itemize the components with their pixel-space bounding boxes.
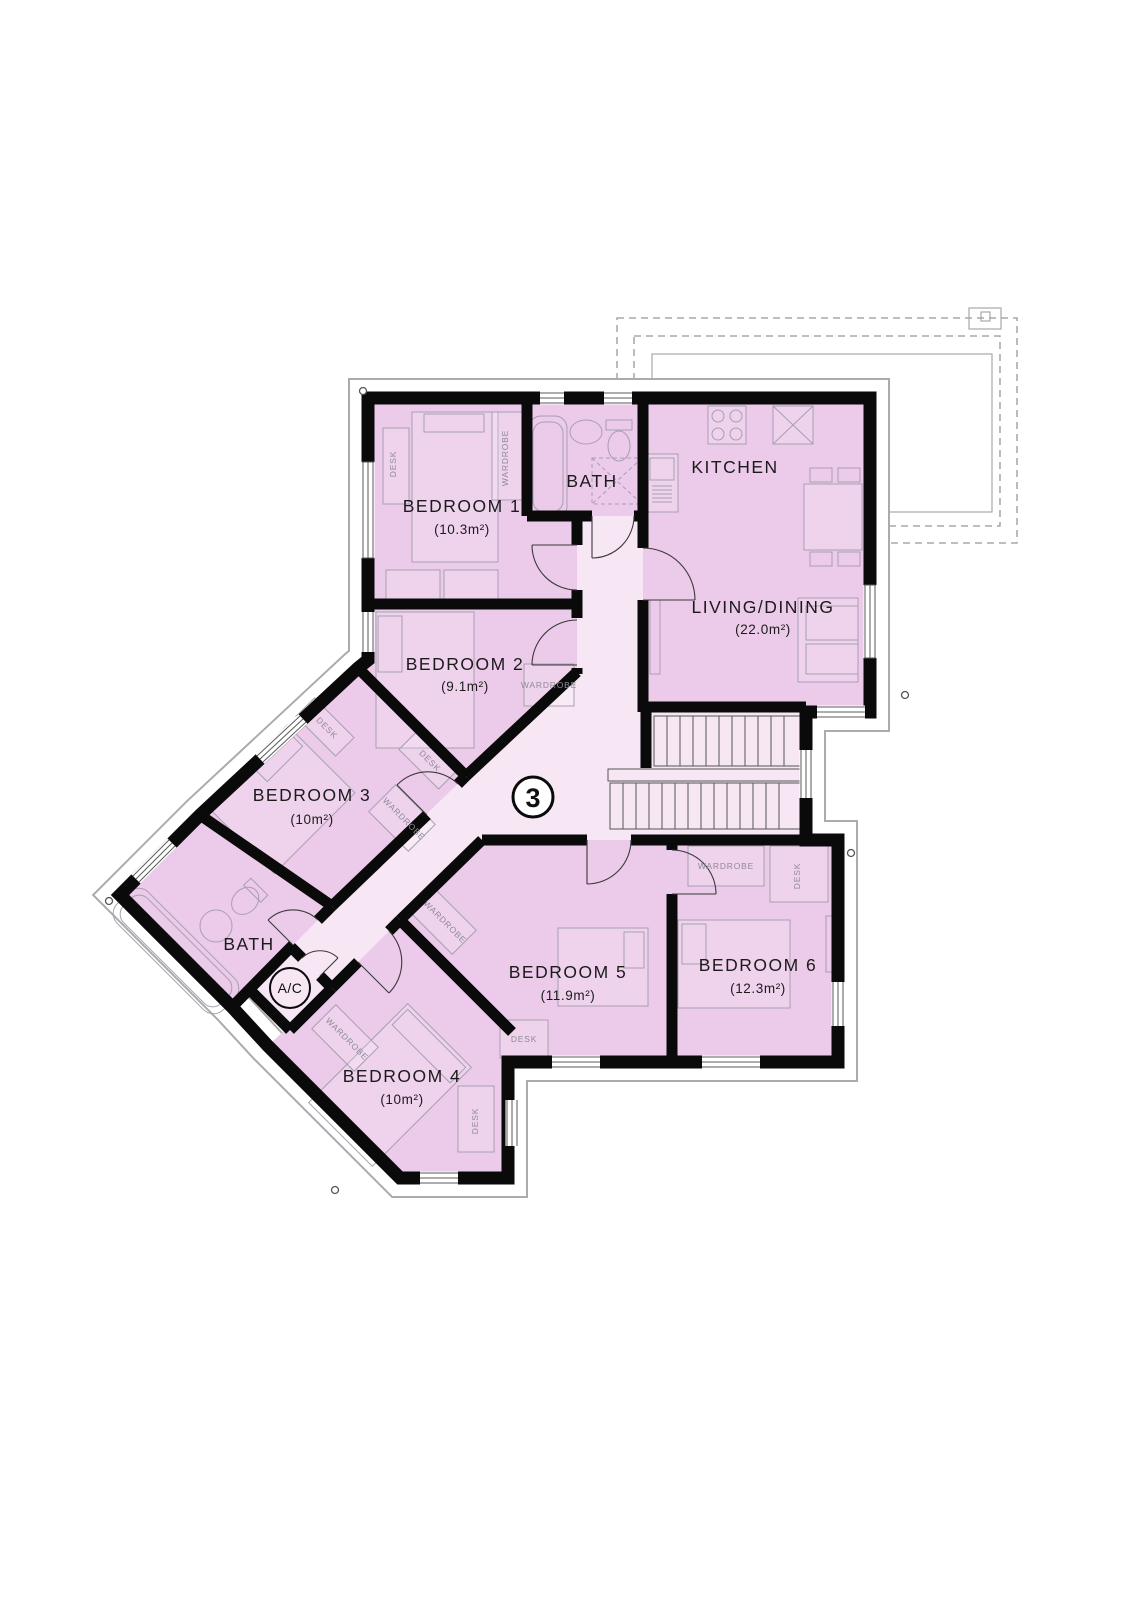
- living-area: (22.0m²): [735, 622, 791, 637]
- kitchen-label: KITCHEN: [691, 457, 778, 477]
- desk-label: DESK: [388, 451, 398, 477]
- bedroom1-area: (10.3m²): [434, 522, 490, 537]
- wardrobe-label: WARDROBE: [500, 430, 510, 486]
- desk-label: DESK: [792, 863, 802, 889]
- floor-plan-canvas: BEDROOM 1 (10.3m²) BATH KITCHEN LIVING/D…: [0, 0, 1131, 1600]
- wardrobe-label: WARDROBE: [698, 861, 754, 871]
- fridge: [646, 454, 678, 512]
- bedroom6-label: BEDROOM 6: [699, 955, 818, 975]
- dining-table: [804, 484, 862, 550]
- bedroom4-label: BEDROOM 4: [343, 1066, 462, 1086]
- bedroom5-label: BEDROOM 5: [509, 962, 628, 982]
- bedroom5-area: (11.9m²): [541, 988, 596, 1003]
- desk-label: DESK: [511, 1034, 537, 1044]
- bedroom4-area: (10m²): [380, 1092, 423, 1107]
- floorplan-page: BEDROOM 1 (10.3m²) BATH KITCHEN LIVING/D…: [0, 0, 1131, 1600]
- ac-label: A/C: [278, 980, 303, 996]
- bedroom1-label: BEDROOM 1: [403, 496, 522, 516]
- desk-label: DESK: [470, 1108, 480, 1134]
- flat-number: 3: [525, 783, 540, 813]
- roof-vent: [969, 308, 1001, 329]
- bedroom6-area: (12.3m²): [730, 981, 786, 996]
- bedroom3-label: BEDROOM 3: [253, 785, 372, 805]
- bedroom3-area: (10m²): [290, 812, 333, 827]
- bath-lower-label: BATH: [223, 934, 274, 954]
- bedroom2-label: BEDROOM 2: [406, 654, 525, 674]
- flat-number-badge: 3: [513, 777, 553, 817]
- bedroom2-area: (9.1m²): [441, 679, 489, 694]
- bath-upper-label: BATH: [566, 471, 617, 491]
- bed: [412, 412, 498, 562]
- wardrobe-label: WARDROBE: [521, 680, 577, 690]
- living-label: LIVING/DINING: [692, 597, 835, 617]
